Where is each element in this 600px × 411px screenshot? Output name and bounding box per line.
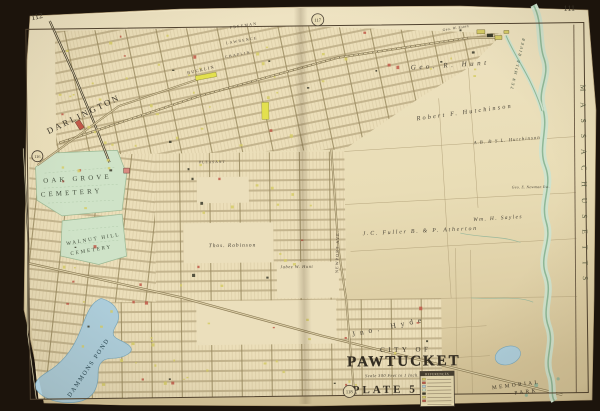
atlas-photo: REFERENCES CITY OF PAWTUCKET Sca xyxy=(0,0,600,411)
vignette xyxy=(24,7,596,406)
map-canvas: REFERENCES CITY OF PAWTUCKET Sca xyxy=(0,0,600,411)
